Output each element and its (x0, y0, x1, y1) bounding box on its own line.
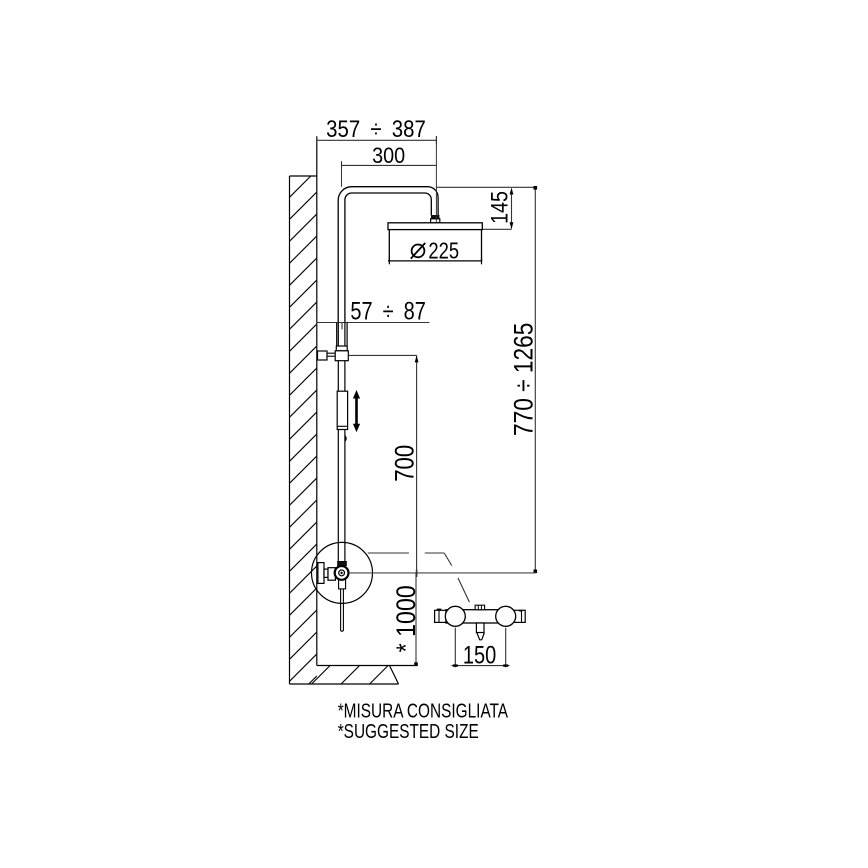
svg-text:225: 225 (428, 239, 459, 264)
svg-text:57 ÷ 87: 57 ÷ 87 (350, 297, 425, 325)
svg-text:357 ÷ 387: 357 ÷ 387 (326, 116, 426, 143)
svg-text:* 1000: * 1000 (391, 585, 421, 652)
svg-text:770 ÷ 1265: 770 ÷ 1265 (509, 323, 539, 436)
svg-text:150: 150 (463, 641, 496, 669)
svg-text:300: 300 (372, 144, 405, 168)
svg-text:*SUGGESTED SIZE: *SUGGESTED SIZE (338, 720, 479, 742)
svg-text:145: 145 (486, 191, 513, 224)
svg-text:700: 700 (391, 445, 421, 482)
svg-text:*MISURA CONSIGLIATA: *MISURA CONSIGLIATA (338, 700, 508, 722)
